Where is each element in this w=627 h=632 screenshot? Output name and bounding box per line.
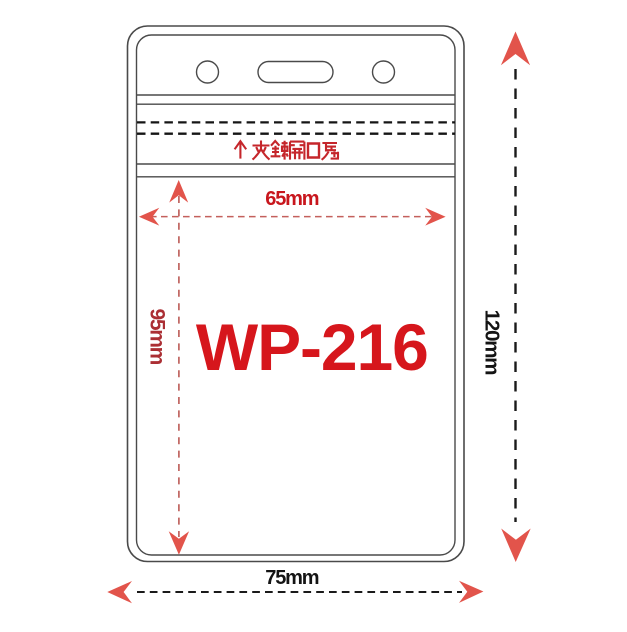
svg-text:WP-216: WP-216 [196,310,428,384]
svg-text:120mm: 120mm [481,310,504,375]
svg-text:65mm: 65mm [265,188,318,210]
svg-text:95mm: 95mm [146,309,169,365]
svg-text:75mm: 75mm [265,567,318,589]
